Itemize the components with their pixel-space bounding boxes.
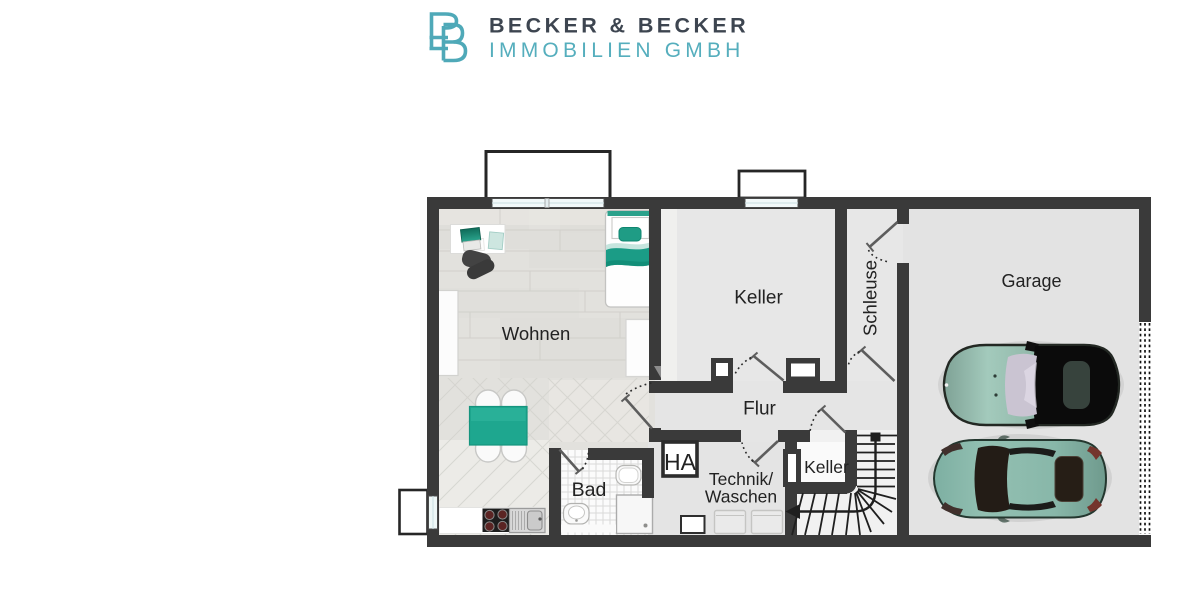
svg-text:Keller: Keller	[804, 457, 849, 477]
svg-text:Flur: Flur	[743, 399, 776, 420]
svg-text:Garage: Garage	[1001, 271, 1061, 291]
svg-text:IMMOBILIEN GMBH: IMMOBILIEN GMBH	[489, 39, 745, 62]
svg-text:HA: HA	[664, 449, 697, 475]
svg-text:BECKER & BECKER: BECKER & BECKER	[489, 14, 749, 38]
svg-text:Wohnen: Wohnen	[502, 323, 571, 344]
svg-text:Schleuse: Schleuse	[860, 260, 881, 336]
svg-text:Waschen: Waschen	[705, 487, 777, 507]
svg-text:Bad: Bad	[572, 479, 607, 501]
svg-text:Keller: Keller	[734, 288, 783, 309]
